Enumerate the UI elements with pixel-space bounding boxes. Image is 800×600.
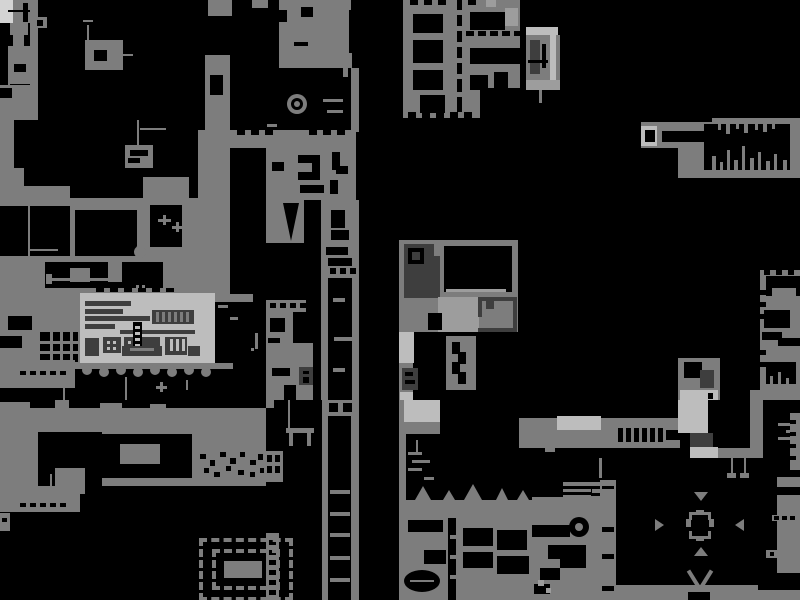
map-rect xyxy=(731,458,733,474)
map-rect xyxy=(438,0,446,5)
map-rect xyxy=(2,518,7,522)
map-rect xyxy=(602,586,614,591)
map-rect xyxy=(528,60,548,63)
map-rect xyxy=(135,332,140,335)
map-rect xyxy=(450,555,456,559)
map-rect xyxy=(424,550,446,564)
map-rect xyxy=(328,258,352,266)
map-rect xyxy=(343,403,352,412)
map-rect xyxy=(266,148,290,200)
map-rect xyxy=(408,468,422,471)
map-rect xyxy=(539,90,542,103)
map-rect xyxy=(333,298,345,302)
map-rect xyxy=(486,297,494,309)
map-rect xyxy=(429,256,440,298)
map-triangle-marker xyxy=(283,203,299,241)
map-rect xyxy=(309,130,317,135)
map-rect xyxy=(230,317,238,320)
map-rect xyxy=(413,14,443,33)
map-rect xyxy=(678,400,708,433)
map-triangle-marker xyxy=(496,488,508,500)
map-rect xyxy=(210,75,223,95)
map-rect xyxy=(340,268,346,274)
map-rect xyxy=(333,368,345,372)
map-rect xyxy=(303,371,309,374)
map-circle xyxy=(133,367,143,377)
map-rect xyxy=(592,489,612,493)
map-rect xyxy=(50,474,52,500)
map-rect xyxy=(420,252,424,264)
map-rect xyxy=(413,40,443,63)
map-rect xyxy=(790,516,795,520)
map-rect xyxy=(404,422,440,434)
map-rect xyxy=(351,416,359,600)
map-rect xyxy=(350,268,356,274)
map-rect xyxy=(125,145,153,168)
map-circle xyxy=(82,365,92,375)
map-rect xyxy=(602,527,614,532)
map-rect xyxy=(258,454,263,460)
map-circle xyxy=(201,367,211,377)
map-rect xyxy=(772,288,796,298)
map-rect xyxy=(251,348,254,351)
map-rect xyxy=(790,444,796,448)
map-triangle-marker xyxy=(655,519,664,531)
map-rect xyxy=(422,112,430,118)
map-rect xyxy=(300,303,306,308)
map-rect xyxy=(46,274,52,284)
map-rect xyxy=(457,26,462,31)
map-rect xyxy=(208,0,232,16)
map-rect xyxy=(351,68,359,132)
map-rect xyxy=(267,455,272,462)
map-rect xyxy=(168,274,171,277)
map-rect xyxy=(172,226,183,229)
map-rect xyxy=(30,371,36,375)
map-rect xyxy=(405,372,413,376)
map-rect xyxy=(782,140,785,147)
map-rect xyxy=(230,458,236,464)
map-rect xyxy=(266,400,274,408)
map-rect xyxy=(514,31,522,36)
map-rect xyxy=(284,385,296,400)
map-rect xyxy=(190,212,198,220)
map-rect xyxy=(94,50,107,61)
map-rect xyxy=(270,318,285,332)
map-rect xyxy=(60,371,66,375)
map-rect xyxy=(113,341,116,344)
map-rect xyxy=(658,428,663,442)
map-rect xyxy=(744,458,746,474)
map-rect xyxy=(192,270,195,273)
map-rect xyxy=(330,180,338,194)
map-rect xyxy=(330,268,336,274)
map-rect xyxy=(200,454,206,459)
map-rect xyxy=(464,112,472,118)
map-rect xyxy=(162,312,165,322)
map-rect xyxy=(758,590,800,600)
map-rect xyxy=(180,312,183,322)
map-rect xyxy=(690,447,718,458)
map-rect xyxy=(786,378,789,384)
map-rect xyxy=(776,270,782,275)
map-rect xyxy=(323,130,331,135)
map-rect xyxy=(331,230,349,240)
map-rect xyxy=(400,392,413,400)
map-rect xyxy=(416,440,418,452)
map-rect xyxy=(128,341,131,344)
map-rect xyxy=(399,332,414,363)
map-rect xyxy=(466,31,474,36)
map-rect xyxy=(478,297,482,317)
map-rect xyxy=(542,44,546,68)
map-rect xyxy=(497,530,527,550)
map-rect xyxy=(778,372,781,384)
map-rect xyxy=(343,68,348,77)
map-rect xyxy=(275,466,280,473)
map-rect xyxy=(408,520,443,532)
map-rect xyxy=(218,305,228,308)
map-rect xyxy=(28,249,58,251)
map-rect xyxy=(152,288,160,292)
map-rect xyxy=(182,339,185,351)
map-rect xyxy=(288,400,290,428)
map-rect xyxy=(696,536,704,541)
map-rect xyxy=(12,474,14,500)
map-rect xyxy=(770,552,774,556)
map-rect xyxy=(560,556,586,568)
map-rect xyxy=(703,536,711,539)
map-rect xyxy=(197,277,213,280)
map-rect xyxy=(740,473,749,478)
map-rect xyxy=(405,380,415,384)
map-rect xyxy=(343,10,349,53)
map-rect xyxy=(563,486,591,489)
map-rect xyxy=(750,158,754,170)
map-rect xyxy=(294,42,308,46)
map-rect xyxy=(448,518,456,600)
map-rect xyxy=(156,386,167,389)
map-rect xyxy=(420,95,445,113)
map-rect xyxy=(107,347,110,350)
map-rect xyxy=(280,303,286,308)
map-rect xyxy=(760,350,766,355)
map-rect xyxy=(478,297,517,301)
map-rect xyxy=(734,160,738,170)
map-rect xyxy=(742,146,745,170)
map-rect xyxy=(330,556,350,560)
map-rect xyxy=(438,297,479,332)
map-rect xyxy=(174,312,177,322)
map-rect xyxy=(412,460,430,463)
map-rect xyxy=(330,533,350,537)
map-rect xyxy=(85,316,150,321)
map-rect xyxy=(634,428,639,442)
map-rect xyxy=(158,219,171,222)
map-rect xyxy=(237,130,245,135)
map-rect xyxy=(424,0,432,5)
map-rect xyxy=(198,130,230,200)
map-rect xyxy=(85,338,99,356)
map-rect xyxy=(85,301,131,306)
map-rect xyxy=(526,80,560,90)
map-rect xyxy=(486,0,496,7)
map-rect xyxy=(10,23,28,35)
map-rect xyxy=(135,326,140,329)
map-rect xyxy=(783,160,787,170)
map-rect xyxy=(777,487,800,495)
map-rect xyxy=(265,130,273,135)
map-rect xyxy=(270,303,276,308)
map-rect xyxy=(267,124,277,127)
map-rect xyxy=(413,70,443,90)
map-triangle-marker xyxy=(134,240,146,252)
map-rect xyxy=(170,339,173,351)
map-rect xyxy=(497,556,529,574)
map-triangle-marker xyxy=(464,484,482,500)
map-rect xyxy=(470,75,488,90)
map-rect xyxy=(470,48,520,64)
map-rect xyxy=(204,468,209,473)
map-rect xyxy=(168,312,171,322)
map-rect xyxy=(727,473,736,478)
map-rect xyxy=(186,380,188,390)
map-rect xyxy=(424,477,434,480)
map-rect xyxy=(307,433,311,446)
map-rect xyxy=(494,72,508,96)
world-map xyxy=(0,0,800,600)
map-rect xyxy=(505,8,518,26)
map-rect xyxy=(252,0,268,8)
map-rect xyxy=(642,428,647,442)
map-rect xyxy=(70,332,73,362)
map-rect xyxy=(550,33,556,80)
map-rect xyxy=(708,393,713,399)
map-rect xyxy=(251,130,259,135)
map-circle xyxy=(294,101,300,107)
map-rect xyxy=(457,74,462,79)
map-rect xyxy=(279,10,287,22)
map-rect xyxy=(764,270,770,275)
map-rect xyxy=(85,309,123,314)
map-rect xyxy=(545,448,555,452)
map-rect xyxy=(13,35,24,46)
map-rect xyxy=(326,247,348,255)
map-rect xyxy=(156,312,159,322)
map-rect xyxy=(120,330,195,334)
map-rect xyxy=(592,503,612,507)
map-rect xyxy=(766,161,770,170)
map-rect xyxy=(124,288,132,292)
map-rect xyxy=(764,310,790,328)
map-rect xyxy=(20,503,26,507)
map-rect xyxy=(763,124,767,132)
map-rect xyxy=(113,347,116,350)
map-rect xyxy=(450,535,456,539)
map-rect xyxy=(700,370,714,388)
map-rect xyxy=(123,54,133,56)
map-rect xyxy=(60,332,63,362)
map-rect xyxy=(226,466,231,471)
map-rect xyxy=(718,124,721,130)
map-rect xyxy=(298,172,314,180)
map-rect xyxy=(470,12,505,30)
map-rect xyxy=(502,31,510,36)
map-rect xyxy=(87,25,89,40)
map-circle xyxy=(184,365,194,375)
game-map-screenshot xyxy=(0,0,800,600)
map-rect xyxy=(322,400,359,416)
map-circle xyxy=(99,367,109,377)
map-rect xyxy=(337,130,345,135)
map-rect xyxy=(690,433,713,447)
map-rect xyxy=(790,456,796,460)
map-rect xyxy=(478,328,517,332)
map-rect xyxy=(457,58,462,63)
map-rect xyxy=(272,368,290,376)
map-rect xyxy=(688,592,710,600)
map-rect xyxy=(30,503,36,507)
map-rect xyxy=(760,362,766,367)
map-rect xyxy=(557,416,601,430)
map-rect xyxy=(32,474,34,500)
map-rect xyxy=(188,346,200,356)
map-rect xyxy=(513,297,517,332)
map-rect xyxy=(709,519,714,527)
map-rect xyxy=(772,124,775,129)
map-rect xyxy=(300,185,324,193)
map-rect xyxy=(240,452,245,457)
map-rect xyxy=(744,124,748,133)
map-rect xyxy=(530,40,540,74)
map-triangle-marker xyxy=(517,490,529,500)
map-rect xyxy=(616,585,758,600)
map-rect xyxy=(272,162,284,171)
map-rect xyxy=(40,503,46,507)
map-circle xyxy=(116,365,126,375)
map-rect xyxy=(758,152,761,170)
map-rect xyxy=(626,428,631,442)
map-rect xyxy=(110,288,118,292)
map-rect xyxy=(758,573,800,590)
map-rect xyxy=(712,156,716,170)
map-rect xyxy=(55,400,69,408)
map-rect xyxy=(760,302,766,307)
map-rect xyxy=(478,31,486,36)
map-rect xyxy=(782,516,787,520)
map-rect xyxy=(457,92,462,97)
map-rect xyxy=(778,423,790,426)
map-ring xyxy=(212,549,280,590)
map-rect xyxy=(645,130,655,142)
map-rect xyxy=(321,278,328,400)
map-rect xyxy=(220,452,226,457)
map-rect xyxy=(790,432,796,436)
map-rect xyxy=(330,512,350,516)
map-circle xyxy=(167,367,177,377)
map-rect xyxy=(0,513,10,531)
map-rect xyxy=(546,588,551,593)
map-rect xyxy=(736,124,739,129)
map-rect xyxy=(0,336,22,348)
map-rect xyxy=(120,444,160,464)
map-rect xyxy=(408,452,422,455)
map-rect xyxy=(540,568,560,580)
map-rect xyxy=(50,332,53,362)
map-rect xyxy=(750,390,763,458)
map-rect xyxy=(334,0,351,10)
map-rect xyxy=(458,372,466,384)
map-rect xyxy=(696,510,704,515)
map-rect xyxy=(275,455,280,462)
map-rect xyxy=(125,377,127,400)
map-rect xyxy=(166,288,174,292)
map-rect xyxy=(301,7,313,17)
map-rect xyxy=(135,338,140,341)
map-rect xyxy=(83,20,93,22)
map-rect xyxy=(412,260,420,264)
map-rect xyxy=(327,110,343,113)
map-rect xyxy=(770,376,773,384)
map-rect xyxy=(323,99,343,102)
map-rect xyxy=(200,284,203,287)
map-rect xyxy=(778,338,800,346)
map-rect xyxy=(130,348,154,351)
map-rect xyxy=(538,580,544,586)
map-rect xyxy=(760,314,766,319)
map-rect xyxy=(788,270,794,275)
map-rect xyxy=(23,3,28,22)
map-rect xyxy=(238,470,244,475)
map-rect xyxy=(463,528,493,546)
map-rect xyxy=(408,112,416,118)
map-triangle-marker xyxy=(694,547,708,556)
map-rect xyxy=(727,150,730,170)
map-rect xyxy=(290,303,296,308)
map-rect xyxy=(128,158,140,163)
map-rect xyxy=(720,162,723,170)
map-rect xyxy=(103,337,121,353)
map-rect xyxy=(0,408,266,434)
map-rect xyxy=(130,150,148,156)
map-rect xyxy=(650,428,655,442)
map-rect xyxy=(210,460,215,466)
map-rect xyxy=(330,578,350,582)
map-rect xyxy=(444,246,512,292)
map-rect xyxy=(765,140,768,147)
map-rect xyxy=(255,333,258,349)
map-rect xyxy=(328,416,351,600)
map-rect xyxy=(410,0,418,5)
map-rect xyxy=(602,554,614,559)
map-rect xyxy=(599,458,602,478)
map-circle xyxy=(150,365,160,375)
map-rect xyxy=(708,403,713,409)
map-rect xyxy=(266,343,313,360)
map-rect xyxy=(303,377,309,383)
map-rect xyxy=(590,482,614,486)
map-rect xyxy=(428,313,442,330)
map-circle xyxy=(575,523,583,531)
map-rect xyxy=(138,288,146,292)
map-rect xyxy=(85,324,115,329)
map-rect xyxy=(450,112,458,118)
map-rect xyxy=(267,466,272,473)
map-rect xyxy=(50,371,56,375)
map-rect xyxy=(186,312,189,322)
map-rect xyxy=(60,503,66,507)
map-rect xyxy=(20,371,26,375)
